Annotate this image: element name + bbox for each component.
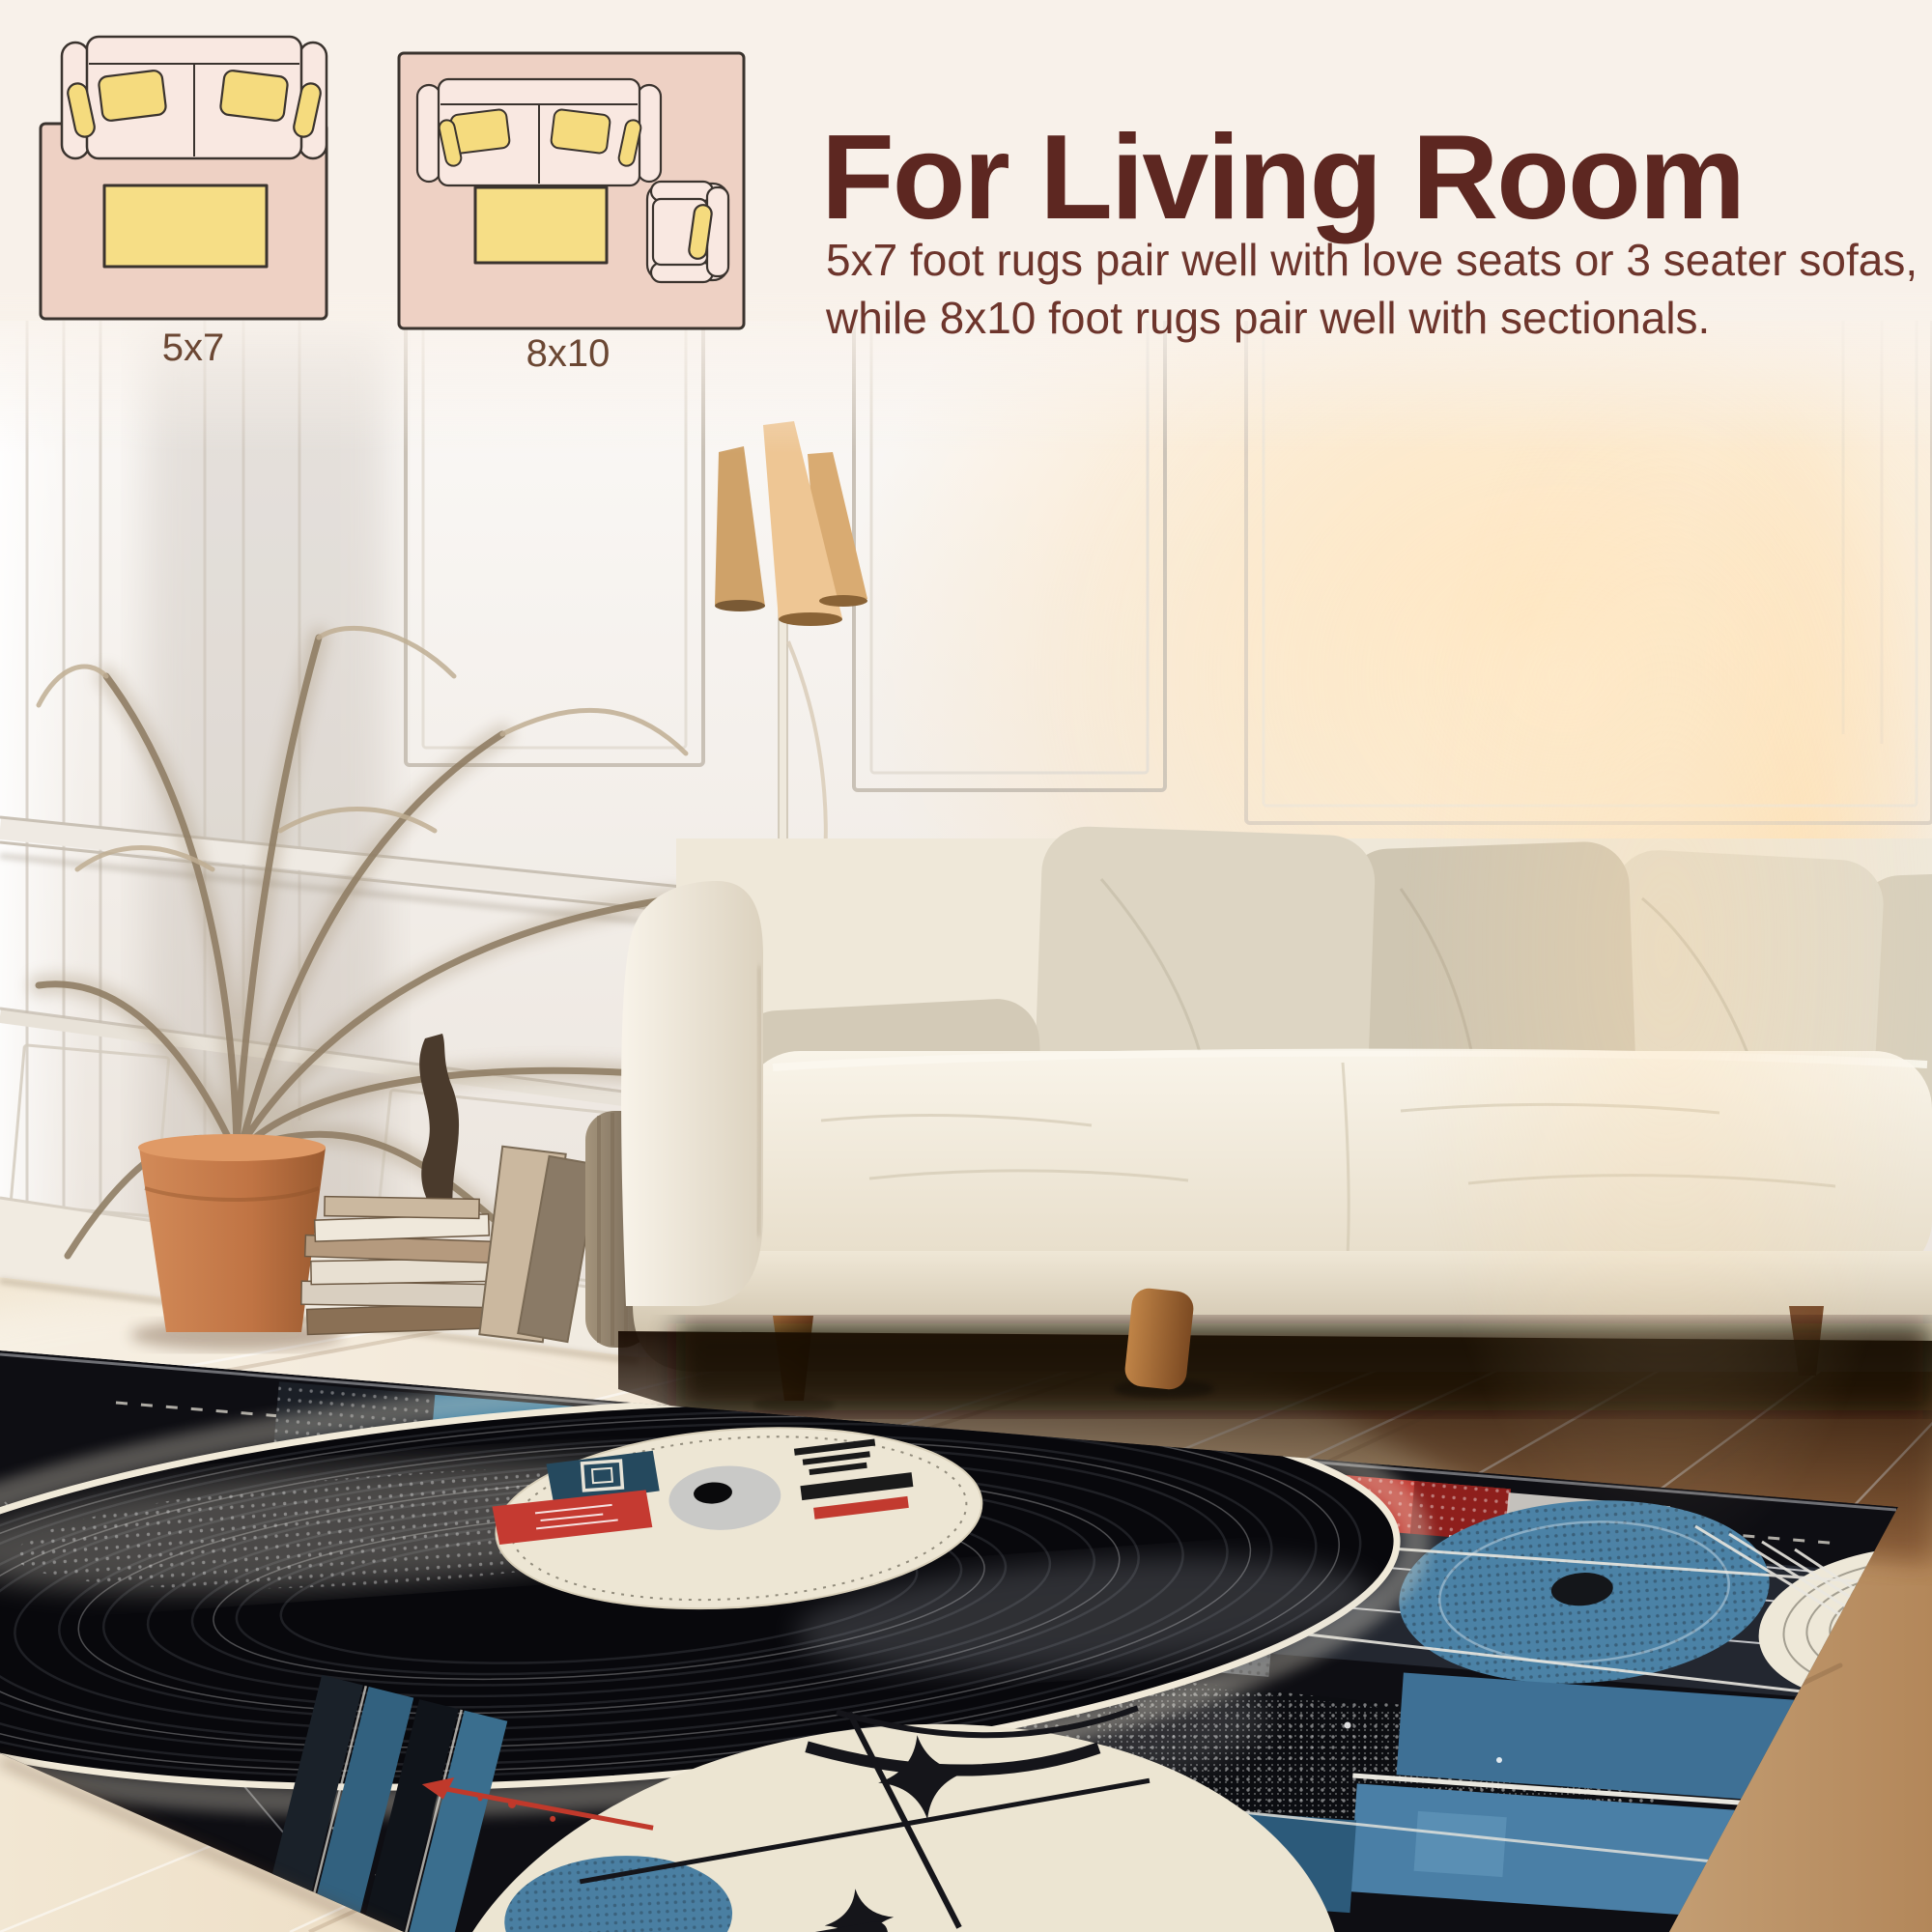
- size-diagram-5x7: [41, 37, 327, 319]
- sofa-arm: [621, 881, 763, 1306]
- size-diagram-8x10: [399, 53, 744, 328]
- page-title: For Living Room: [821, 115, 1922, 241]
- product-infographic: For Living Room 5x7 foot rugs pair well …: [0, 0, 1932, 1932]
- coffee-table-icon: [104, 185, 267, 267]
- warm-light-wash: [1401, 321, 1932, 1577]
- size-guide-description: 5x7 foot rugs pair well with love seats …: [826, 232, 1932, 348]
- coffee-table-icon: [475, 187, 607, 263]
- diagram-label-5x7: 5x7: [106, 327, 280, 370]
- diagram-label-8x10: 8x10: [481, 332, 655, 376]
- armchair-icon: [647, 182, 728, 282]
